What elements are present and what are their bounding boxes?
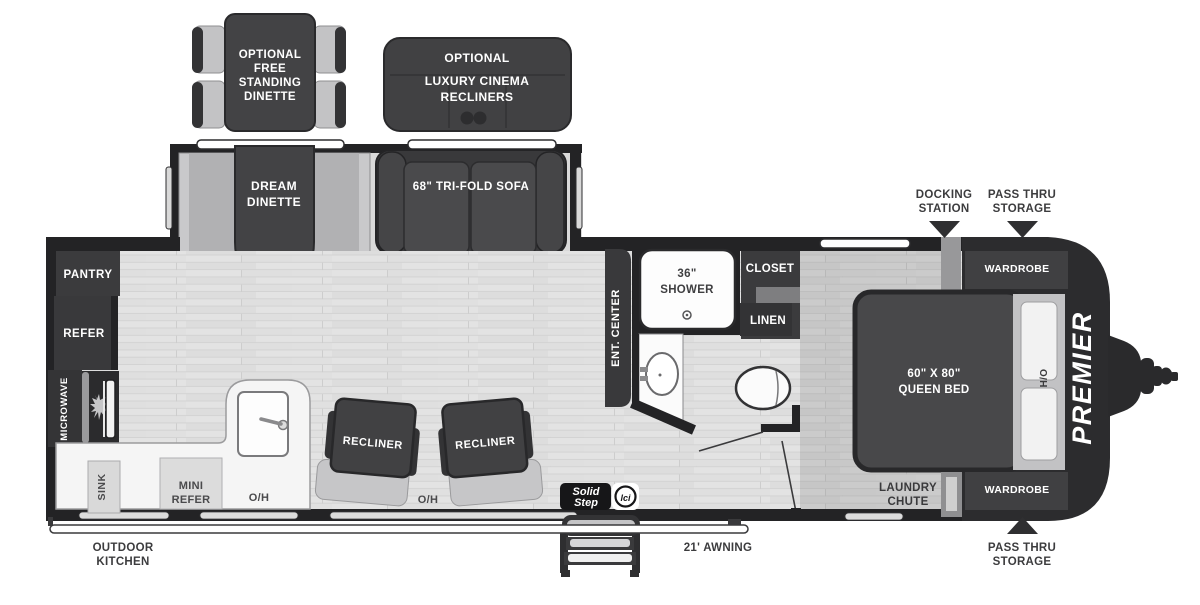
svg-text:H/O: H/O [1039,369,1050,388]
svg-text:PASS THRU: PASS THRU [988,189,1056,201]
svg-text:REFER: REFER [63,328,105,340]
svg-text:RECLINERS: RECLINERS [441,90,514,104]
svg-text:DREAM: DREAM [251,179,297,193]
svg-text:CLOSET: CLOSET [746,263,794,275]
svg-text:WARDROBE: WARDROBE [985,484,1050,496]
svg-text:DOCKING: DOCKING [916,189,972,201]
svg-text:OPTIONAL: OPTIONAL [444,51,509,65]
svg-text:STORAGE: STORAGE [993,556,1052,568]
svg-text:REFER: REFER [172,494,211,506]
svg-text:MICROWAVE: MICROWAVE [59,377,70,440]
svg-text:lci: lci [620,493,631,503]
svg-text:O/H: O/H [418,494,438,506]
svg-text:KITCHEN: KITCHEN [96,556,149,568]
svg-text:OUTDOOR: OUTDOOR [93,542,154,554]
svg-text:21' AWNING: 21' AWNING [684,542,753,554]
svg-text:Step: Step [574,497,598,509]
svg-text:FREE: FREE [254,63,286,75]
svg-text:QUEEN BED: QUEEN BED [898,384,969,396]
svg-text:LAUNDRY: LAUNDRY [879,482,937,494]
svg-text:MINI: MINI [179,480,203,492]
svg-text:STORAGE: STORAGE [993,203,1052,215]
svg-text:O/H: O/H [249,492,269,504]
svg-text:68" TRI-FOLD SOFA: 68" TRI-FOLD SOFA [413,181,529,193]
svg-text:STANDING: STANDING [239,77,301,89]
svg-text:60" X 80": 60" X 80" [907,368,960,380]
svg-text:DINETTE: DINETTE [244,91,296,103]
svg-text:STATION: STATION [919,203,970,215]
svg-text:PASS THRU: PASS THRU [988,542,1056,554]
svg-text:LINEN: LINEN [750,315,786,327]
svg-text:WARDROBE: WARDROBE [985,263,1050,275]
svg-text:PREMIER: PREMIER [1067,311,1097,445]
svg-text:DINETTE: DINETTE [247,195,301,209]
svg-text:SHOWER: SHOWER [660,284,714,296]
svg-text:PANTRY: PANTRY [64,269,113,281]
svg-text:CHUTE: CHUTE [887,496,928,508]
svg-text:OPTIONAL: OPTIONAL [239,49,302,61]
svg-text:SINK: SINK [96,473,108,500]
svg-text:ENT. CENTER: ENT. CENTER [610,289,622,367]
svg-text:LUXURY CINEMA: LUXURY CINEMA [425,74,530,88]
svg-text:36": 36" [677,268,696,280]
